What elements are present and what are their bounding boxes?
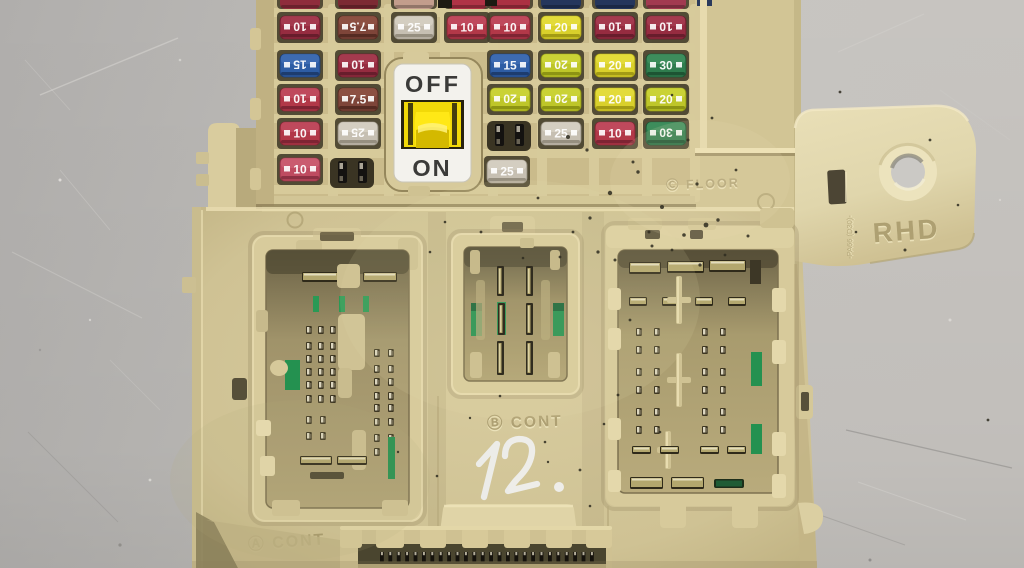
svg-text:20: 20	[554, 58, 568, 72]
svg-text:10: 10	[293, 92, 307, 106]
svg-text:30: 30	[659, 58, 673, 72]
svg-text:20: 20	[608, 92, 622, 106]
svg-text:20: 20	[554, 92, 568, 106]
svg-text:25: 25	[351, 126, 365, 140]
svg-text:10: 10	[659, 20, 673, 34]
svg-text:20: 20	[554, 20, 568, 34]
svg-text:RHD: RHD	[872, 213, 941, 249]
svg-text:10: 10	[293, 20, 307, 34]
svg-text:15: 15	[293, 58, 307, 72]
svg-text:10: 10	[351, 58, 365, 72]
svg-text:7.5: 7.5	[349, 20, 366, 34]
svg-text:15: 15	[503, 58, 517, 72]
svg-text:25: 25	[407, 20, 421, 34]
svg-text:10: 10	[293, 126, 307, 140]
svg-text:10: 10	[608, 126, 622, 140]
svg-text:OFF: OFF	[405, 71, 461, 97]
svg-text:20: 20	[503, 92, 517, 106]
svg-text:25: 25	[500, 164, 514, 178]
svg-text:-PA66 (D30)-: -PA66 (D30)-	[845, 215, 854, 259]
svg-text:10: 10	[293, 162, 307, 176]
svg-text:10: 10	[503, 20, 517, 34]
svg-text:20: 20	[608, 58, 622, 72]
svg-text:7.5: 7.5	[350, 92, 367, 106]
svg-text:10: 10	[460, 20, 474, 34]
svg-text:10: 10	[608, 20, 622, 34]
svg-text:ON: ON	[412, 155, 451, 181]
svg-text:25: 25	[554, 126, 568, 140]
